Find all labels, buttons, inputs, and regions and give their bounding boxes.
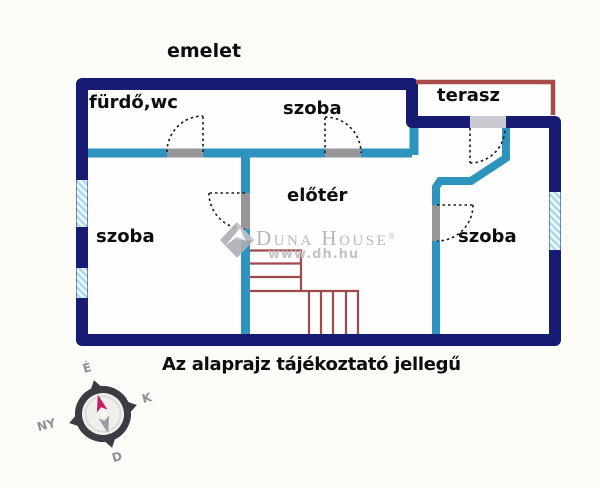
room-label-terrace: terasz (437, 87, 500, 105)
registered-mark: ® (388, 231, 395, 241)
floor-plan-page: emelet fürdő,wc szoba terasz előtér szob… (0, 0, 600, 488)
compass-rose-icon (60, 371, 146, 457)
door-opening-bedroom-top (325, 149, 361, 158)
window-right (550, 192, 561, 250)
room-label-bedroom-top: szoba (283, 100, 342, 118)
room-label-bedroom-right: szoba (458, 228, 517, 246)
door-opening-bedroom-left (241, 193, 250, 229)
window-left-2 (77, 268, 88, 298)
watermark-website: www.dh.hu (268, 248, 359, 261)
floor-title: emelet (167, 42, 241, 61)
door-opening-bedroom-right (432, 205, 440, 241)
disclaimer-caption: Az alaprajz tájékoztató jellegű (162, 356, 461, 374)
room-label-bedroom-left: szoba (96, 228, 155, 246)
room-label-hall: előtér (287, 187, 347, 205)
door-opening-terrace (470, 116, 506, 128)
duna-house-watermark: Duna House® (256, 228, 395, 249)
room-label-bathroom: fürdő,wc (89, 94, 178, 112)
door-opening-bathroom (167, 149, 203, 158)
window-left-1 (77, 180, 88, 227)
